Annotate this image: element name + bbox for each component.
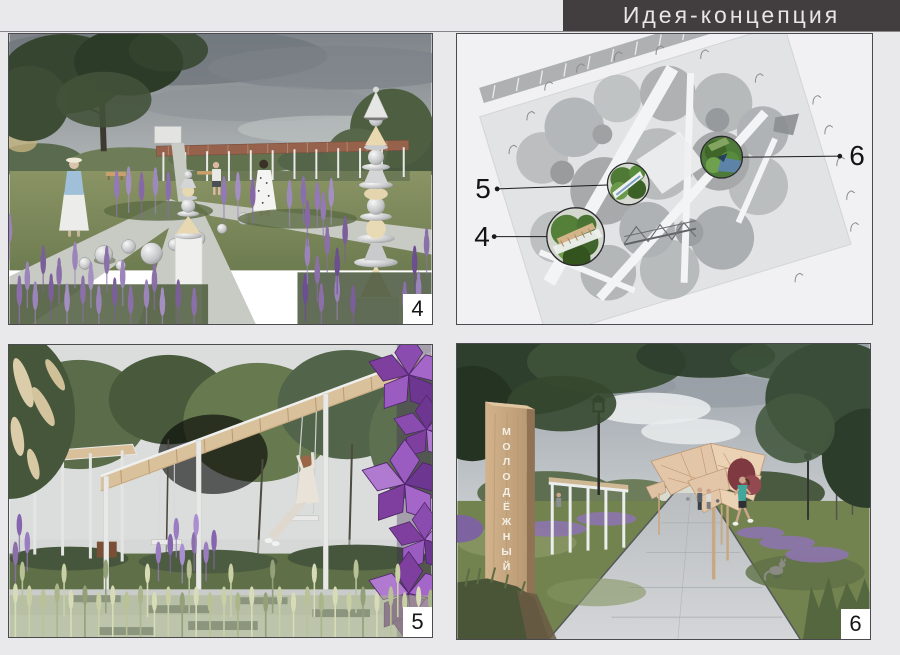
kiosk bbox=[154, 126, 181, 143]
callout-circle-5-view bbox=[607, 163, 649, 205]
concept-board-page: Идея-концепция bbox=[0, 0, 900, 655]
plan-callout-5: 5 bbox=[471, 175, 495, 203]
panel-number-badge: 6 bbox=[841, 609, 870, 639]
master-plan-panel: 5 4 6 bbox=[456, 33, 873, 325]
plan-callout-4: 4 bbox=[470, 223, 494, 251]
render-panel-entrance-path: МОЛОДЁЖНЫЙ 6 bbox=[456, 343, 871, 640]
plan-callout-6: 6 bbox=[845, 142, 869, 170]
render-panel-pergola-swings: 5 bbox=[8, 344, 433, 638]
garden-render-illustration bbox=[9, 34, 432, 324]
pergola-render-illustration bbox=[9, 345, 432, 637]
callout-circle-6-view bbox=[701, 136, 743, 178]
render-panel-garden-sculptures: 4 bbox=[8, 33, 433, 325]
panel-number-badge: 5 bbox=[403, 607, 432, 637]
panel-number-badge: 4 bbox=[403, 294, 432, 324]
page-title: Идея-концепция bbox=[563, 0, 900, 31]
master-plan-illustration bbox=[457, 34, 872, 324]
path-render-illustration bbox=[457, 344, 870, 639]
header-rule bbox=[0, 31, 900, 32]
sign-vertical-text: МОЛОДЁЖНЫЙ bbox=[501, 426, 512, 576]
